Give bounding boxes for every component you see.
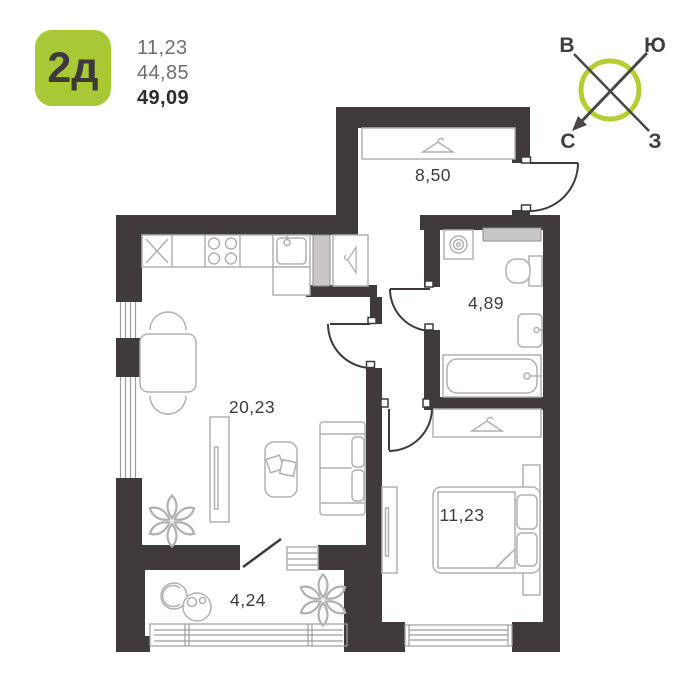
living-area-label: 20,23 bbox=[229, 397, 275, 417]
compass-icon: В Ю С З bbox=[559, 34, 665, 153]
compass-east-label: В bbox=[559, 34, 574, 57]
toilet-icon bbox=[506, 256, 542, 286]
bedroom-tv-panel bbox=[382, 487, 397, 573]
balcony-door-leaf bbox=[243, 539, 281, 567]
entrance-door-arc bbox=[530, 163, 578, 211]
compass-west-label: З bbox=[648, 130, 661, 153]
dresser bbox=[287, 547, 318, 570]
kitchen-counter bbox=[142, 235, 310, 295]
bed bbox=[433, 465, 540, 595]
washing-machine-icon bbox=[444, 230, 473, 259]
compass-south-label: Ю bbox=[644, 34, 666, 57]
bathroom-area-label: 4,89 bbox=[468, 293, 504, 313]
living-window-lower bbox=[121, 377, 136, 478]
tv-stand bbox=[210, 417, 229, 522]
pillow bbox=[517, 533, 537, 566]
balcony-window bbox=[150, 624, 347, 646]
floor-plan-page: 2д 11,23 44,85 49,09 bbox=[0, 0, 700, 700]
bathroom-sink-icon bbox=[518, 314, 543, 347]
book-icon bbox=[280, 460, 297, 477]
vent-shaft bbox=[313, 235, 330, 286]
coffee-table bbox=[265, 442, 297, 497]
balcony-area-label: 4,24 bbox=[230, 590, 266, 610]
sofa bbox=[320, 422, 365, 515]
dining-table bbox=[140, 312, 196, 414]
bedroom-area-label: 11,23 bbox=[440, 505, 485, 525]
hall-closet bbox=[333, 235, 368, 286]
plant-icon bbox=[148, 496, 197, 547]
bedroom-window bbox=[405, 625, 512, 646]
compass-north-label: С bbox=[560, 130, 575, 153]
counter-extension bbox=[273, 267, 310, 295]
plant-icon bbox=[299, 575, 348, 626]
living-window-upper bbox=[121, 302, 136, 338]
hallway-area-label: 8,50 bbox=[415, 165, 451, 185]
hall-wardrobe bbox=[362, 128, 515, 159]
pillow bbox=[517, 495, 537, 529]
balcony-table bbox=[183, 593, 211, 621]
chair-icon bbox=[150, 312, 186, 330]
living-door-arc bbox=[328, 324, 372, 368]
bedroom-wardrobe bbox=[433, 409, 541, 437]
chair-icon bbox=[150, 396, 186, 414]
floor-plan-drawing: 8,50 4,89 20,23 11,23 4,24 В Ю С З bbox=[0, 0, 700, 700]
bedroom-door-arc bbox=[389, 408, 432, 451]
bathtub-icon bbox=[443, 355, 541, 397]
kitchen-sink-icon bbox=[277, 235, 306, 264]
bathroom-vent-shaft bbox=[483, 228, 541, 241]
